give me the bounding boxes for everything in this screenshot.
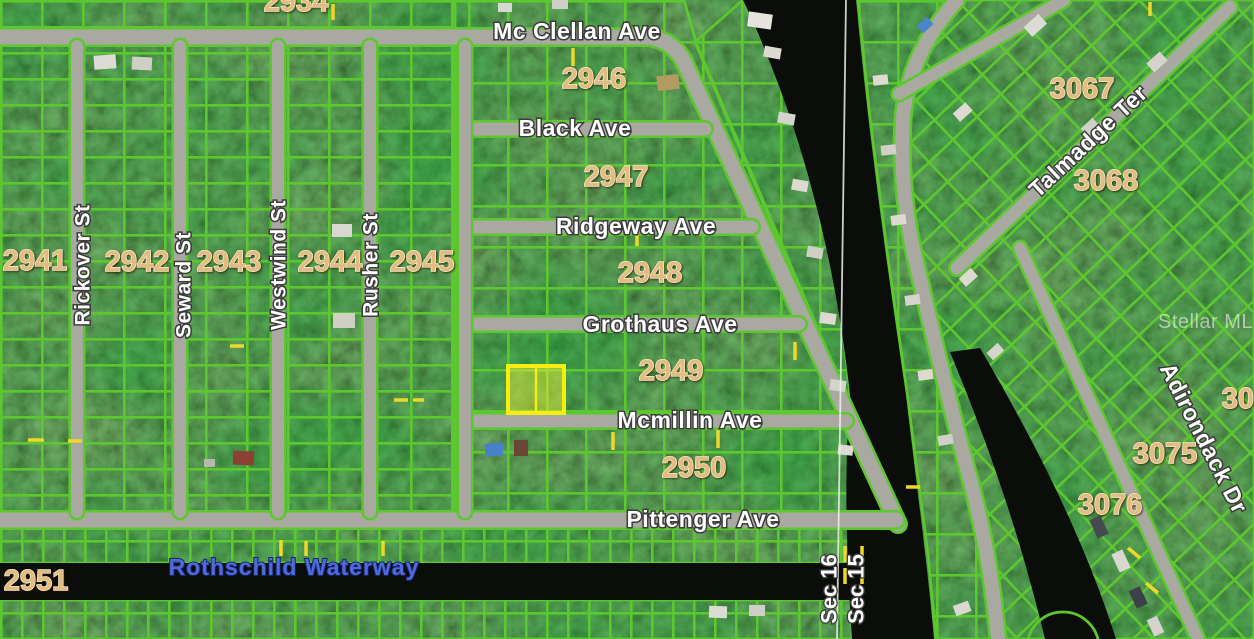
block-label-2946: 2946 (562, 63, 627, 95)
map-canvas: Mc Clellan Ave Black Ave Ridgeway Ave Gr… (0, 0, 1254, 639)
section-label-east: Sec 15 (844, 554, 869, 624)
block-label-2945: 2945 (390, 246, 455, 278)
street-label-black: Black Ave (519, 115, 632, 141)
block-label-2943: 2943 (197, 246, 262, 278)
rothschild-waterway (0, 563, 870, 600)
block-label-2948: 2948 (618, 257, 683, 289)
house-roof (485, 442, 504, 456)
street-label-mcmillin: Mcmillin Ave (618, 407, 763, 433)
block-label-2947: 2947 (584, 161, 649, 193)
house-roof (749, 605, 765, 616)
house-roof (819, 312, 836, 325)
stellar-mls-watermark: Stellar MLS (1158, 311, 1254, 333)
block-label-2950: 2950 (662, 452, 727, 484)
street-label-westwind: Westwind St (268, 200, 291, 330)
house-roof (709, 606, 727, 619)
house-roof (881, 144, 897, 156)
waterway-label: Rothschild Waterway (169, 554, 420, 580)
house-roof (333, 313, 355, 328)
street-label-grothaus: Grothaus Ave (582, 311, 737, 337)
block-label-3075: 3075 (1133, 438, 1198, 470)
house-roof (332, 224, 352, 237)
section-label-west: Sec 16 (817, 554, 842, 624)
subject-lot (508, 366, 564, 413)
block-label-3068: 3068 (1074, 165, 1139, 197)
house-roof (552, 0, 568, 9)
house-roof (890, 214, 906, 226)
lot-grid-pittenger-south (0, 527, 898, 563)
aerial-plat-map: Mc Clellan Ave Black Ave Ridgeway Ave Gr… (0, 0, 1254, 639)
house-roof (656, 74, 679, 91)
block-label-2941: 2941 (3, 245, 68, 277)
house-roof (873, 74, 889, 86)
house-roof (917, 369, 933, 381)
house-roof (233, 450, 255, 465)
street-label-pittenger: Pittenger Ave (626, 506, 779, 532)
lot-grid-below-waterway (0, 600, 852, 639)
street-label-rickover: Rickover St (72, 204, 95, 325)
street-label-ridgeway: Ridgeway Ave (556, 213, 716, 239)
block-label-3076: 3076 (1078, 489, 1143, 521)
house-roof (498, 3, 512, 12)
house-roof (829, 379, 846, 392)
house-roof (132, 56, 153, 70)
block-label-3067: 3067 (1050, 73, 1115, 105)
block-label-2944: 2944 (298, 246, 363, 278)
block-label-2951: 2951 (4, 565, 69, 597)
block-label-307x: 307 (1222, 383, 1254, 415)
block-label-2949: 2949 (639, 355, 704, 387)
block-label-2934: 2934 (264, 0, 329, 18)
street-label-rusher: Rusher St (360, 213, 383, 317)
street-label-seward: Seward St (173, 232, 196, 338)
dirt-patch (514, 440, 528, 456)
house-roof (904, 294, 920, 306)
street-label-mcclellan: Mc Clellan Ave (493, 18, 661, 44)
block-label-2942: 2942 (105, 246, 170, 278)
house-roof (204, 459, 215, 467)
house-roof (94, 54, 117, 70)
